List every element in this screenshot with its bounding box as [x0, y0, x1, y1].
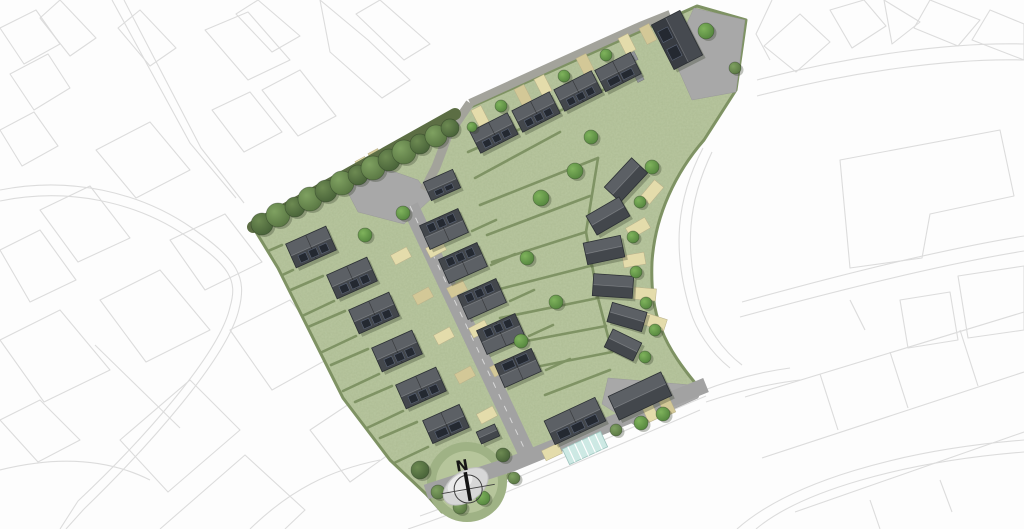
- tree-icon: [698, 23, 714, 39]
- context-line: [679, 148, 730, 368]
- context-line: [0, 461, 150, 480]
- context-line: [0, 400, 80, 462]
- context-line: [205, 12, 290, 80]
- context-line: [870, 500, 880, 529]
- context-line: [850, 300, 865, 330]
- tree-icon: [431, 485, 445, 499]
- tree-icon: [508, 472, 520, 484]
- grass-texture: [0, 0, 1024, 529]
- tree-icon: [645, 160, 659, 174]
- context-line: [840, 130, 1014, 268]
- house-roof: [592, 274, 633, 299]
- context-line: [762, 372, 1024, 458]
- context-line: [914, 0, 980, 46]
- context-line: [0, 112, 58, 166]
- tree-icon: [514, 334, 528, 348]
- context-line: [40, 0, 96, 56]
- site-plan: N: [0, 0, 1024, 529]
- tree-icon: [533, 190, 549, 206]
- context-line: [972, 10, 1024, 60]
- tree-icon: [396, 206, 410, 220]
- tree-icon: [627, 231, 639, 243]
- context-line: [742, 236, 1024, 302]
- tree-icon: [558, 70, 570, 82]
- context-line: [0, 10, 60, 64]
- context-line: [737, 440, 1024, 529]
- tree-icon: [640, 297, 652, 309]
- context-line: [212, 92, 282, 152]
- tree-icon: [649, 324, 661, 336]
- tree-icon: [634, 416, 648, 430]
- tree-icon: [411, 461, 429, 479]
- context-line: [740, 251, 1024, 317]
- tree-icon: [634, 196, 646, 208]
- tree-icon: [630, 266, 642, 278]
- context-line: [757, 44, 1024, 80]
- tree-icon: [600, 49, 612, 61]
- context-line: [40, 186, 130, 262]
- context-line: [690, 152, 742, 365]
- site-area: [0, 0, 1024, 529]
- tree-icon: [358, 228, 372, 242]
- context-line: [236, 0, 300, 52]
- context-line: [830, 0, 886, 48]
- tree-icon: [467, 122, 477, 132]
- tree-icon: [656, 407, 670, 421]
- context-line: [100, 270, 210, 362]
- tree-icon: [610, 424, 622, 436]
- context-line: [795, 432, 1024, 512]
- site-plan-canvas: N: [0, 0, 1024, 529]
- tree-icon: [549, 295, 563, 309]
- context-line: [884, 0, 920, 44]
- context-line: [0, 230, 76, 302]
- tree-icon: [496, 448, 510, 462]
- context-line: [764, 14, 830, 72]
- context-line: [160, 455, 305, 529]
- context-line: [900, 292, 958, 348]
- context-line: [890, 352, 908, 408]
- context-line: [118, 10, 176, 66]
- context-line: [95, 345, 180, 428]
- context-line: [0, 196, 233, 529]
- context-line: [96, 122, 190, 198]
- context-line: [940, 480, 952, 512]
- tree-icon: [441, 119, 459, 137]
- context-line: [958, 266, 1024, 338]
- tree-icon: [567, 163, 583, 179]
- context-line: [820, 374, 838, 430]
- tree-icon: [639, 351, 651, 363]
- tree-icon: [729, 62, 741, 74]
- context-line: [10, 54, 70, 110]
- context-line: [706, 380, 800, 402]
- context-line: [262, 70, 336, 136]
- context-line: [757, 60, 1024, 96]
- context-line: [756, 452, 1024, 529]
- tree-icon: [495, 100, 507, 112]
- tree-icon: [520, 251, 534, 265]
- context-line: [745, 312, 1024, 397]
- tree-icon: [584, 130, 598, 144]
- context-line: [0, 310, 110, 402]
- context-line: [356, 0, 430, 60]
- context-line: [250, 460, 380, 529]
